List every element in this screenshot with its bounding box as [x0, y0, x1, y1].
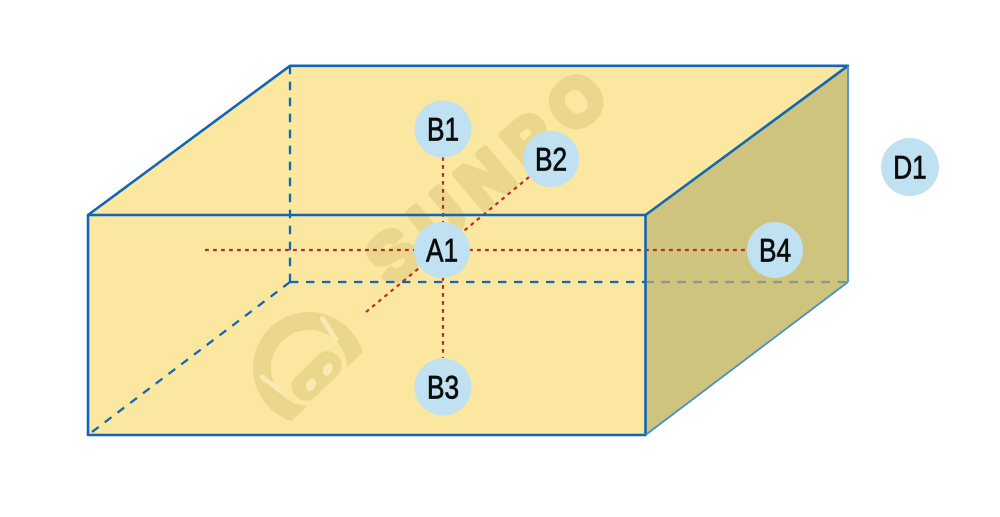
svg-text:D1: D1 [893, 151, 927, 186]
svg-text:B3: B3 [427, 371, 459, 406]
svg-text:B2: B2 [535, 143, 567, 178]
svg-text:A1: A1 [426, 234, 458, 269]
svg-text:B4: B4 [759, 234, 791, 269]
svg-text:B1: B1 [427, 113, 459, 148]
